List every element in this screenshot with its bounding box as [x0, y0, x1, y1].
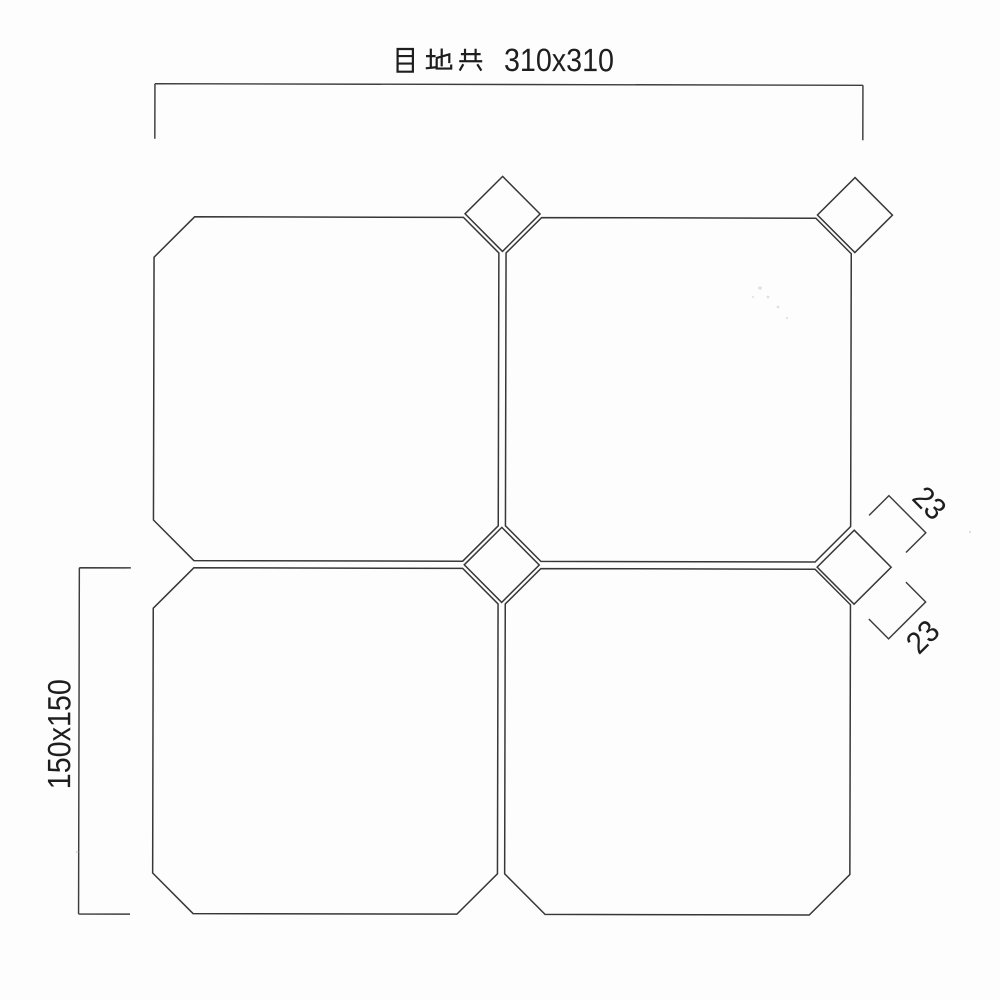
svg-text:310x310: 310x310 [504, 42, 614, 78]
svg-text:23: 23 [899, 613, 946, 660]
svg-text:150x150: 150x150 [41, 679, 77, 789]
